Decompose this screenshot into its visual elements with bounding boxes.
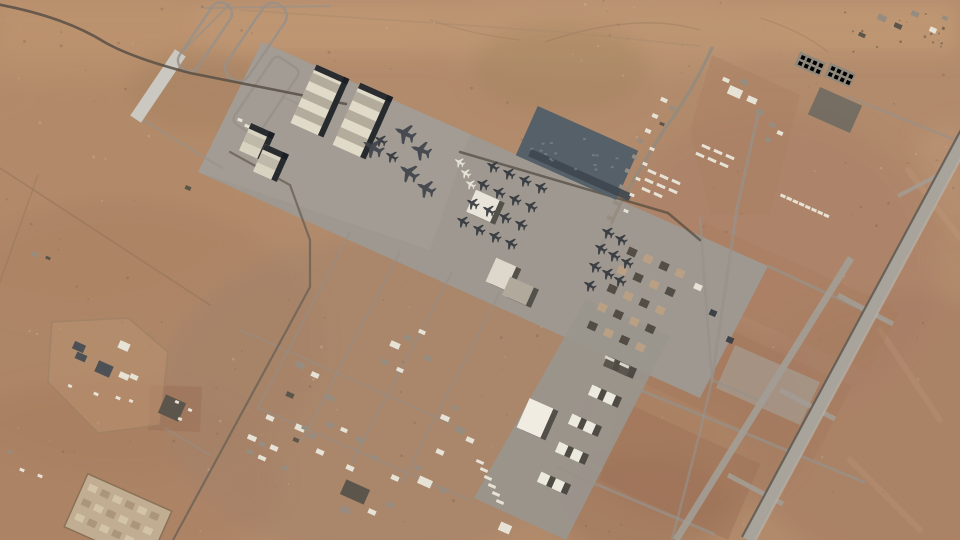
panel-glint [540,150,543,152]
speckle [60,31,62,33]
panel-glint [542,143,545,145]
speckle [324,317,326,319]
speckle [634,41,635,42]
speckle [876,46,878,48]
speckle [76,285,78,287]
speckle [117,42,120,45]
speckle [312,378,315,381]
speckle [844,11,846,13]
speckle [241,350,243,352]
speckle [506,414,508,416]
speckle [251,32,253,34]
speckle [73,451,75,453]
speckle [506,101,508,103]
speckle [335,51,336,52]
speckle [915,153,917,155]
speckle [240,29,243,32]
speckle [390,68,392,70]
speckle [18,77,20,79]
speckle [951,132,952,133]
speckle [814,170,816,172]
panel-glint [594,164,597,166]
speckle [860,206,863,209]
speckle [821,456,823,458]
speckle [633,6,635,8]
panel-glint [594,169,597,171]
speckle [852,51,854,53]
speckle [87,298,89,300]
speckle [452,499,455,502]
speckle [386,27,388,29]
speckle [216,433,218,435]
panel-glint [574,168,577,170]
panel-glint [596,154,599,156]
speckle [129,440,130,441]
panel-glint [550,142,553,144]
speckle [617,23,619,25]
speckle [235,369,237,371]
speckle [288,483,290,485]
speckle [930,33,933,36]
panel-glint [544,153,547,155]
speckle [883,492,884,493]
speckle [199,530,201,532]
speckle [351,372,352,373]
speckle [383,299,385,301]
speckle [608,531,610,533]
speckle [232,358,235,361]
speckle [414,422,416,424]
panel-glint [530,148,533,150]
speckle [932,41,934,43]
speckle [500,336,503,339]
panel-glint [611,166,614,168]
speckle [94,101,95,102]
speckle [536,334,539,337]
speckle [92,155,95,158]
speckle [49,440,50,441]
speckle [875,224,878,227]
speckle [201,5,204,8]
speckle [845,162,847,164]
speckle [23,40,26,43]
speckle [942,27,945,30]
speckle [851,215,852,216]
speckle [681,72,682,73]
speckle [400,455,403,458]
speckle [720,2,722,4]
speckle [940,42,943,45]
speckle [808,86,809,87]
speckle [36,333,38,335]
speckle [219,420,222,423]
speckle [504,356,506,358]
speckle [940,46,942,48]
speckle [681,45,682,46]
speckle [622,74,624,76]
speckle [28,330,31,333]
speckle [132,42,134,44]
panel-glint [592,154,595,156]
speckle [30,223,33,226]
speckle [607,11,608,12]
speckle [261,434,263,436]
speckle [861,30,864,33]
speckle [336,409,338,411]
speckle [881,530,882,531]
speckle [60,238,62,240]
speckle [172,439,175,442]
speckle [636,136,639,139]
speckle [101,200,103,202]
speckle [906,22,907,23]
speckle [938,40,939,41]
speckle [134,200,135,201]
speckle [880,167,883,170]
speckle [924,35,927,38]
speckle [945,146,947,148]
speckle [907,162,909,164]
speckle [572,54,574,56]
speckle [408,306,409,307]
speckle [161,321,163,323]
speckle [887,202,890,205]
speckle [62,450,65,453]
speckle [320,345,323,348]
speckle [938,32,940,34]
speckle [620,524,622,526]
speckle [491,446,492,447]
speckle [215,387,217,389]
speckle [481,396,482,397]
satellite-image: Overhead satellite view of a desert mili… [0,0,960,540]
speckle [334,60,335,61]
speckle [597,45,599,47]
speckle [772,346,774,348]
speckle [952,187,954,189]
speckle [925,13,927,15]
speckle [917,337,918,338]
panel-glint [551,159,554,161]
speckle [743,523,744,524]
speckle [18,428,19,429]
speckle [328,51,331,54]
speckle [779,53,780,54]
speckle [470,87,473,90]
speckle [899,40,902,43]
speckle [893,103,895,105]
speckle [271,34,272,35]
speckle [816,83,817,84]
speckle [295,277,296,278]
satellite-canvas [0,0,960,540]
speckle [917,378,919,380]
speckle [832,492,834,494]
speckle [400,391,402,393]
panel-glint [554,152,557,154]
speckle [275,485,276,486]
speckle [282,413,283,414]
speckle [899,20,901,22]
speckle [942,74,945,77]
speckle [362,270,363,271]
speckle [539,347,540,348]
speckle [938,160,939,161]
speckle [104,158,106,160]
speckle [38,121,41,124]
speckle [309,385,312,388]
speckle [852,30,854,32]
speckle [160,7,163,10]
speckle [288,299,290,301]
panel-glint [583,138,586,140]
speckle [4,23,5,24]
speckle [147,135,150,138]
speckle [661,417,662,418]
speckle [583,3,586,6]
speckle [267,539,268,540]
speckle [124,88,127,91]
speckle [400,287,401,288]
speckle [85,69,86,70]
speckle [581,59,583,61]
speckle [58,249,60,251]
panel-glint [616,157,619,159]
speckle [585,525,587,527]
speckle [20,199,21,200]
speckle [501,368,502,369]
speckle [126,276,129,279]
speckle [922,322,924,324]
speckle [688,65,690,67]
speckle [404,521,406,523]
speckle [60,44,63,47]
speckle [935,159,937,161]
speckle [5,198,7,200]
